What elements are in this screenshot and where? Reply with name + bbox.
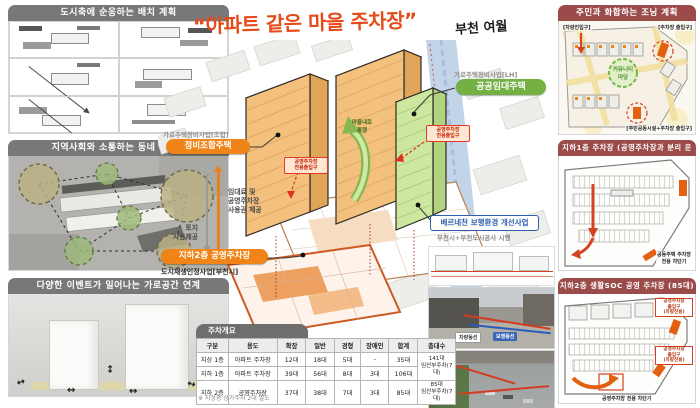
col-use: 용도 (228, 339, 277, 353)
berne-project-sub: 부천시+부천도시공사 시행 (437, 232, 511, 242)
village-path-label: 마을내로 통행 (344, 118, 380, 134)
cell-gen: 18대 (306, 353, 334, 367)
presentation-board: “아파트 같은 마을 주차장” 부천 여월 도시축에 순응하는 배치 계획 지역… (0, 0, 700, 408)
table-row: 지상 1층 아파트 주차장 12대 18대 5대 - 35대 141대 임산부주… (197, 353, 456, 367)
col-gen: 일반 (306, 339, 334, 353)
regeneration-project-label: 도시재생인정사업[부천시] (161, 267, 238, 277)
cell-sum: 35대 (389, 353, 418, 367)
cell-total-apartment: 141대 임산부주차(7대) (418, 353, 456, 381)
table-header-row: 구분 용도 확장 일반 경형 장애인 합계 총대수 (197, 339, 456, 353)
col-floor: 구분 (197, 339, 229, 353)
cell-ext: 37대 (277, 381, 305, 405)
cell-ext: 12대 (277, 353, 305, 367)
cell-sum: 106대 (389, 367, 418, 381)
page-subtitle: 부천 여월 (454, 15, 508, 38)
zoning-label-vehicle-entry: [차량진입구] (562, 24, 592, 31)
cell-disabled: 3대 (361, 381, 389, 405)
cell-disabled: - (361, 353, 389, 367)
arrow-icon: ↔ (104, 365, 114, 373)
panel-b2-parking: 지하2층 생활SOC 공영 주차장 (85대) (558, 278, 696, 405)
b2-parking-pill: 지하2층 공영주차장 (161, 249, 268, 264)
project-label-right: 가로주택정비사업[LH] (454, 69, 517, 79)
b1-barrier-label: 공동주택 주차장 전용 차단기 (656, 251, 692, 265)
panel-zoning: 주민과 화합하는 조닝 계획 (558, 5, 696, 136)
elevation-drawing (428, 246, 555, 286)
b2-barrier-label: 공영주차장 전용 차단기 (601, 395, 652, 402)
arrow-icon: ↔ (129, 387, 137, 397)
page-title: “아파트 같은 마을 주차장” (193, 4, 417, 39)
col-total: 총대수 (418, 339, 456, 353)
zoning-label-community-entry: [주민공동시설+주차장 출입구] (625, 125, 693, 132)
site-diagram-cell (9, 58, 119, 95)
arrow-icon: ↔ (67, 386, 75, 396)
b2-entrance-label-bottom: 공영주차장 출입구 (차량전용) (655, 346, 693, 365)
zoning-label-parking-entry: [주차장 출입구] (657, 24, 693, 31)
cell-gen: 38대 (306, 381, 334, 405)
cell-compact: 5대 (334, 353, 360, 367)
cell-use: 아파트 주차장 (228, 353, 277, 367)
parking-entrance-label-right: 공영주차장 전용출입구 (426, 125, 470, 142)
cell-compact: 7대 (334, 381, 360, 405)
cell-gen: 56대 (306, 367, 334, 381)
walk-path-tag: 보행동선 (493, 332, 517, 341)
col-compact: 경형 (334, 339, 360, 353)
col-disabled: 장애인 (361, 339, 389, 353)
parking-entrance-label-left: 공영주차장 전용출입구 (284, 157, 328, 174)
exchange-arrows (200, 168, 230, 256)
b2-entrance-label-top: 공영주차장 출입구 (차량전용) (655, 298, 693, 317)
cell-floor: 지상 1층 (197, 353, 229, 367)
b1-plan: 공동주택 주차장 전용 차단기 (558, 156, 696, 271)
panel-b1-parking: 지하1층 주차장 (공영주차장과 분리 운영) (558, 140, 696, 272)
public-rental-pill: 공공임대주택 (456, 79, 546, 95)
cell-disabled: 3대 (361, 367, 389, 381)
cell-floor: 지하 1층 (197, 367, 229, 381)
table-row: 지하 1층 아파트 주차장 39대 56대 8대 3대 106대 (197, 367, 456, 381)
berne-project-label: 베르네천 보행환경 개선사업 (430, 215, 539, 231)
site-diagram-cell (9, 96, 119, 133)
b2-plan: 공영주차장 출입구 (차량전용) 공영주차장 출입구 (차량전용) 공영주차장 … (558, 294, 696, 404)
model-tower-left (49, 320, 99, 390)
cell-compact: 8대 (334, 367, 360, 381)
vehicle-path-tag: 차량동선 (455, 332, 481, 343)
site-diagram-cell (9, 21, 119, 58)
panel-title: 지하1층 주차장 (공영주차장과 분리 운영) (558, 140, 696, 156)
table-footnote: ※ 지상층 상가주차 2대 별도 (198, 393, 270, 402)
zoning-plan: [차량진입구] [주차장 출입구] 커뮤니티 마당 [주민공동시설+주차장 출입… (558, 21, 696, 135)
cell-sum: 85대 (389, 381, 418, 405)
land-provision-label: 토지 사용제공 (156, 224, 198, 242)
arrow-icon: ↔ (16, 377, 27, 389)
cell-use: 아파트 주차장 (228, 367, 277, 381)
cell-ext: 39대 (277, 367, 305, 381)
col-sum: 합계 (389, 339, 418, 353)
zoning-label-community-yard: 커뮤니티 마당 (603, 65, 643, 81)
coop-housing-pill: 정비조합주택 (166, 139, 250, 154)
rent-provision-label: 임대료 및 공영주차장 사용권 제공 (228, 188, 290, 214)
cell-total-public: 85대 임산부주차(7대) (418, 381, 456, 405)
parking-table-tab: 주차개요 (196, 324, 308, 338)
panel-title: 지하2층 생활SOC 공영 주차장 (85대) (558, 278, 696, 294)
project-label-left: 가로주택정비사업[조합] (163, 129, 229, 139)
panel-title: 주민과 화합하는 조닝 계획 (558, 5, 696, 21)
col-ext: 확장 (277, 339, 305, 353)
